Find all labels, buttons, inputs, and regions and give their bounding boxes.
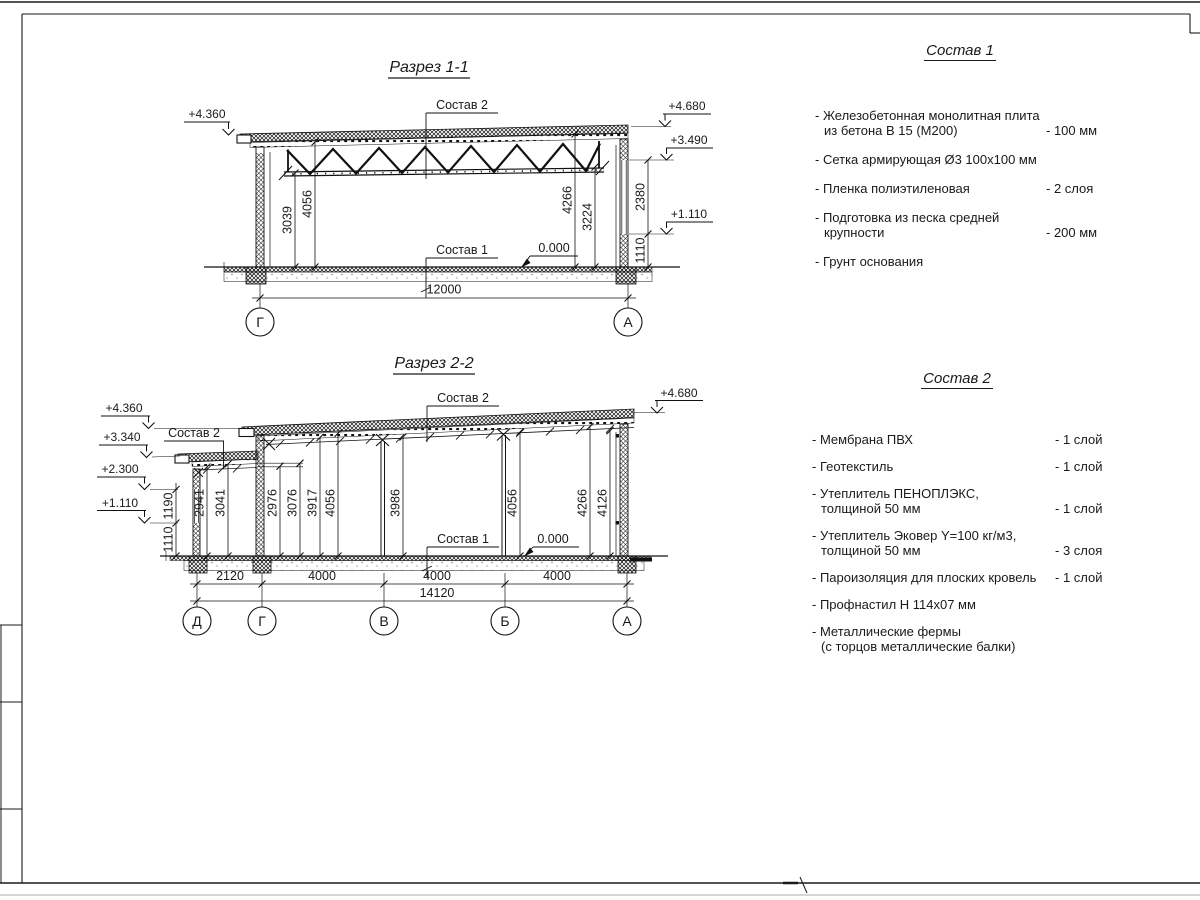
- section1-dim-1110: 1110: [634, 237, 648, 263]
- section2-dim-3917: 3917: [306, 489, 320, 517]
- section1-elev-left: +4.360: [188, 107, 225, 121]
- list-item: - Подготовка из песка средней крупности …: [815, 210, 1125, 240]
- section2-elev-l1: +4.360: [105, 401, 142, 415]
- section2-elev-r1: +4.680: [660, 386, 697, 400]
- list-item: - Металлические фермы (с торцов металлич…: [812, 624, 1122, 654]
- section2-sostav1-label: Состав 1: [437, 532, 489, 546]
- section1-dim-4266: 4266: [561, 186, 575, 214]
- section2-dim-4266: 4266: [576, 489, 590, 517]
- section-2-2: Разрез 2-2: [97, 355, 703, 635]
- section1-truss: [279, 141, 609, 180]
- section-1-1: Разрез 1-1: [184, 59, 713, 336]
- section1-dim-12000: 12000: [427, 283, 462, 297]
- section1-dim-3224: 3224: [581, 203, 595, 231]
- section1-elev-r3: +1.110: [671, 207, 707, 221]
- section2-leanto-roof: [175, 451, 258, 474]
- section1-left-wall: [256, 147, 270, 267]
- section2-sostav2b-label: Состав 2: [437, 391, 489, 405]
- section2-axes: [183, 607, 641, 635]
- section2-main-roof: [239, 409, 634, 448]
- section1-sostav1-label: Состав 1: [436, 243, 488, 257]
- section2-title: Разрез 2-2: [394, 355, 473, 372]
- section2-dim-3076: 3076: [286, 489, 300, 517]
- section1-zero-label: 0.000: [538, 241, 569, 255]
- list-item: - Геотекстиль - 1 слой: [812, 459, 1122, 474]
- section2-axis-a: А: [622, 613, 632, 629]
- section1-title: Разрез 1-1: [389, 59, 468, 76]
- section1-floor: [204, 262, 680, 284]
- section1-dim-3039: 3039: [281, 206, 295, 234]
- section2-elev-l2: +3.340: [103, 430, 140, 444]
- section2-dim-4000b: 4000: [423, 569, 451, 583]
- list-item: - Профнастил Н 114х07 мм: [812, 597, 1122, 612]
- section1-axis-a: А: [623, 314, 633, 330]
- sostav2-title: Состав 2: [812, 370, 1102, 387]
- section2-dim-2941: 2941: [193, 489, 207, 517]
- section2-elev-l3: +2.300: [101, 462, 138, 476]
- section2-dim-1110b: 1110: [162, 526, 176, 552]
- section2-zero-mark: [524, 547, 579, 557]
- section2-dim-4000c: 4000: [543, 569, 571, 583]
- section2-axis-b: Б: [500, 613, 509, 629]
- section1-dim-2380: 2380: [634, 183, 648, 211]
- list-item: - Утеплитель Эковер Y=100 кг/м3, толщино…: [812, 528, 1122, 558]
- list-item: - Грунт основания: [815, 254, 1125, 269]
- sostav1-list: - Железобетонная монолитная плита из бет…: [815, 108, 1125, 283]
- section2-axis-d: Д: [192, 613, 202, 629]
- section2-dim-4126: 4126: [596, 489, 610, 517]
- section2-dim-14120: 14120: [420, 586, 455, 600]
- section2-dim-4056a: 4056: [324, 489, 338, 517]
- section1-sostav2-label: Состав 2: [436, 98, 488, 112]
- section1-axes: [246, 308, 642, 336]
- section2-dim-3986: 3986: [389, 489, 403, 517]
- section2-dim-1190: 1190: [162, 493, 176, 520]
- section2-dim-2976: 2976: [266, 489, 280, 517]
- list-item: - Железобетонная монолитная плита из бет…: [815, 108, 1125, 138]
- sostav2-list: - Мембрана ПВХ - 1 слой - Геотекстиль - …: [812, 432, 1122, 666]
- list-item: - Пароизоляция для плоских кровель - 1 с…: [812, 570, 1122, 585]
- section1-axis-g: Г: [256, 314, 264, 330]
- section2-elev-l4: +1.110: [102, 496, 138, 510]
- list-item: - Пленка полиэтиленовая - 2 слоя: [815, 181, 1125, 196]
- section1-elev-r1: +4.680: [668, 99, 705, 113]
- list-item: - Мембрана ПВХ - 1 слой: [812, 432, 1122, 447]
- section1-roof: [237, 125, 628, 148]
- section2-dim-4000a: 4000: [308, 569, 336, 583]
- section2-axis-v: В: [379, 613, 388, 629]
- section2-zero-label: 0.000: [537, 532, 568, 546]
- drawing-sheet: Разрез 1-1: [0, 0, 1200, 900]
- section2-axis-g: Г: [258, 613, 266, 629]
- section2-dim-4056b: 4056: [506, 489, 520, 517]
- list-item: - Утеплитель ПЕНОПЛЭКС, толщиной 50 мм -…: [812, 486, 1122, 516]
- section2-sostav2a-label: Состав 2: [168, 426, 220, 440]
- section1-elev-r2: +3.490: [670, 133, 707, 147]
- section2-dim-2120: 2120: [216, 569, 244, 583]
- section2-dim-3041: 3041: [214, 489, 228, 517]
- section2-wall-g: [256, 435, 264, 556]
- list-item: - Сетка армирующая Ø3 100х100 мм: [815, 152, 1125, 167]
- section1-dim-4056: 4056: [301, 190, 315, 218]
- sostav1-title: Состав 1: [815, 42, 1105, 59]
- section1-right-wall: [616, 139, 628, 267]
- section1-zero-mark: [521, 256, 578, 268]
- section2-wall-a: [616, 424, 629, 556]
